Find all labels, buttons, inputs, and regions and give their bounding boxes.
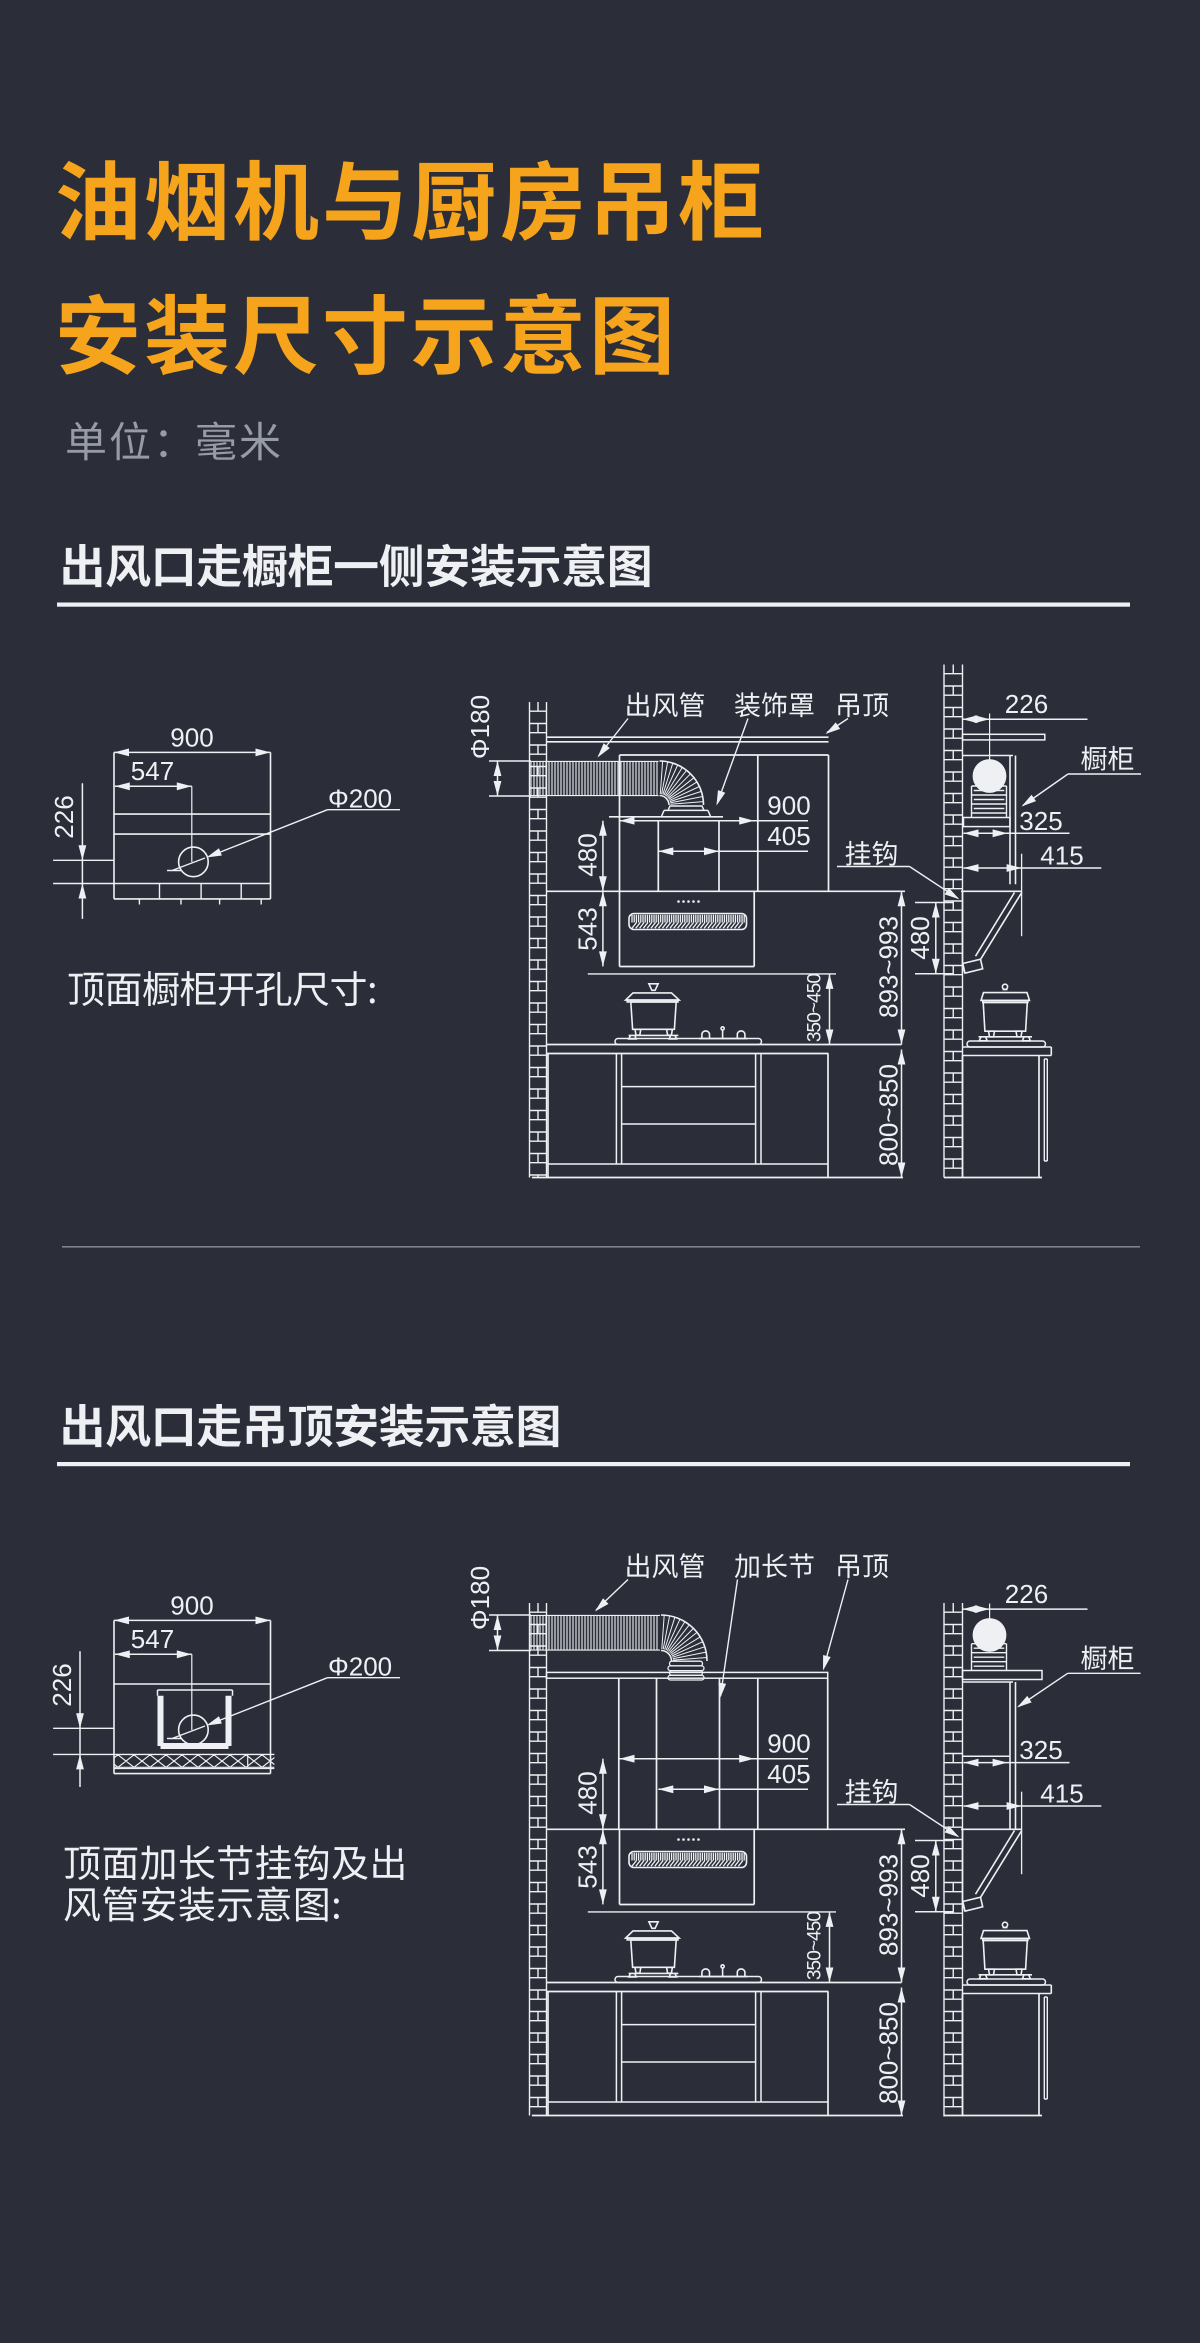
svg-text:226: 226 <box>1005 1579 1048 1609</box>
svg-text:900: 900 <box>767 791 810 821</box>
svg-text:Φ180: Φ180 <box>465 695 495 759</box>
svg-text:Φ180: Φ180 <box>465 1566 495 1630</box>
svg-text:226: 226 <box>49 795 79 838</box>
svg-text:900: 900 <box>170 723 213 753</box>
svg-text:900: 900 <box>170 1591 213 1621</box>
svg-text:543: 543 <box>573 907 603 950</box>
svg-text:325: 325 <box>1019 806 1062 836</box>
svg-text:226: 226 <box>1005 689 1048 719</box>
svg-text:547: 547 <box>131 756 174 786</box>
svg-text:893~993: 893~993 <box>874 916 904 1018</box>
svg-text:325: 325 <box>1019 1735 1062 1765</box>
svg-text:480: 480 <box>905 916 935 959</box>
svg-text:226: 226 <box>47 1663 77 1706</box>
svg-text:547: 547 <box>131 1624 174 1654</box>
svg-text:415: 415 <box>1040 841 1083 871</box>
svg-text:350~450: 350~450 <box>805 974 826 1043</box>
svg-text:480: 480 <box>573 833 603 876</box>
svg-text:405: 405 <box>767 821 810 851</box>
svg-text:800~850: 800~850 <box>874 1064 904 1166</box>
